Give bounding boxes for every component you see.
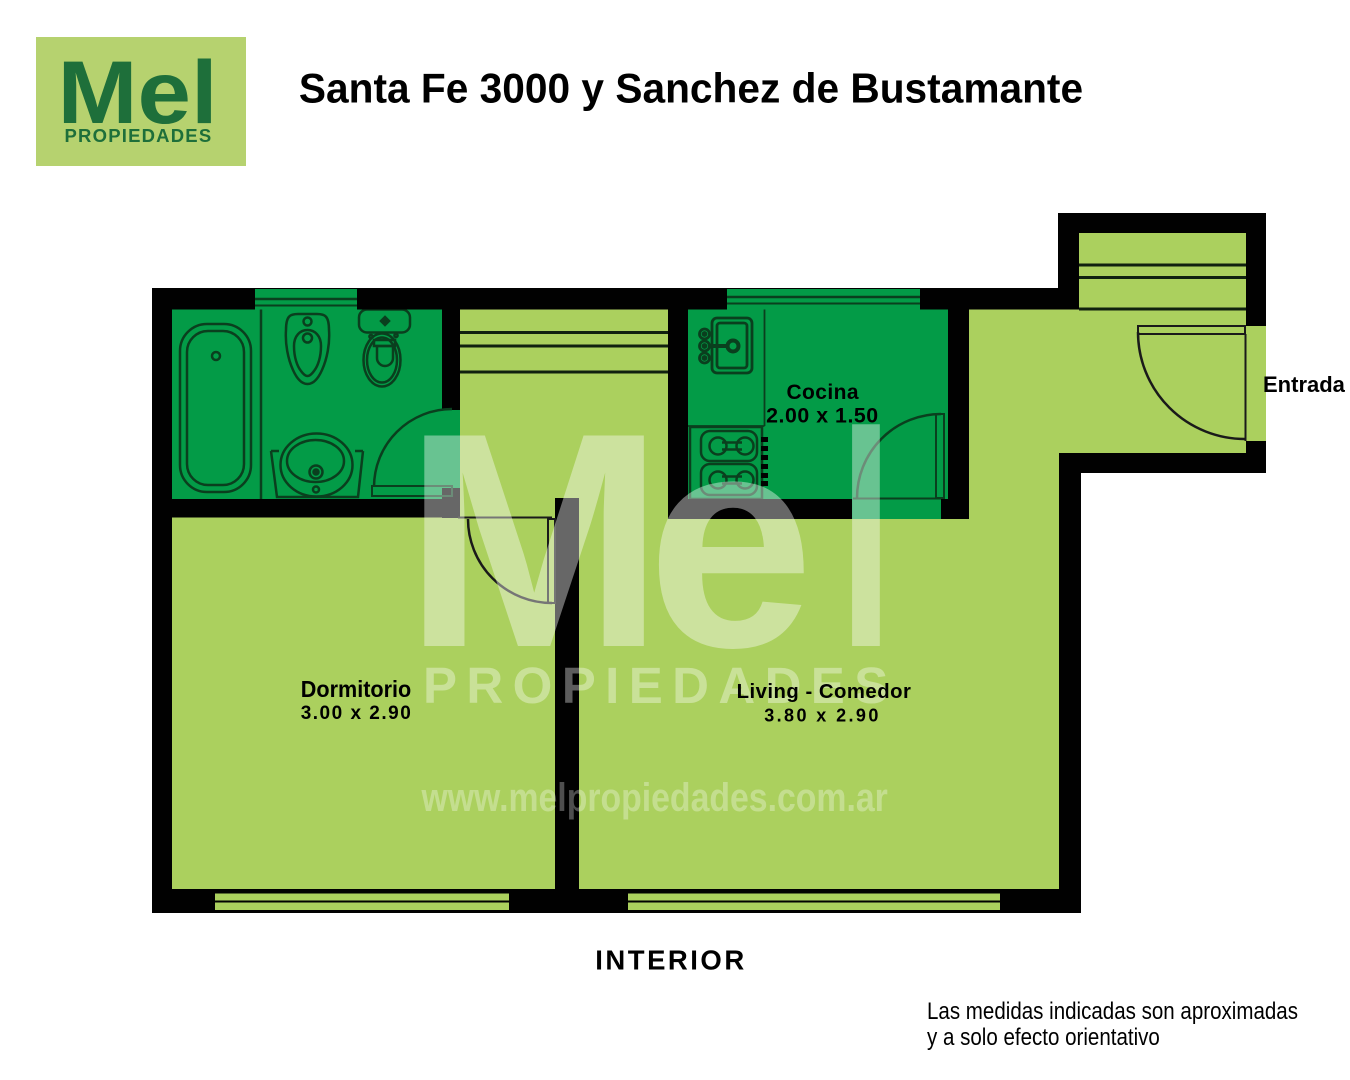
svg-text:y a solo efecto orientativo: y a solo efecto orientativo [927,1024,1160,1051]
svg-text:3.00 x 2.90: 3.00 x 2.90 [301,703,413,724]
svg-text:PROPIEDADES: PROPIEDADES [65,125,213,146]
svg-text:Entrada: Entrada [1263,372,1346,397]
svg-text:Cocina: Cocina [786,381,858,404]
svg-text:www.melpropiedades.com.ar: www.melpropiedades.com.ar [421,774,888,819]
svg-text:Living - Comedor: Living - Comedor [737,681,912,703]
svg-text:INTERIOR: INTERIOR [595,945,746,976]
svg-text:Dormitorio: Dormitorio [301,676,411,702]
svg-text:Santa Fe 3000 y Sanchez de Bus: Santa Fe 3000 y Sanchez de Bustamante [299,65,1083,111]
svg-text:2.00 x 1.50: 2.00 x 1.50 [766,404,879,428]
svg-text:Las medidas indicadas son apro: Las medidas indicadas son aproximadas [927,998,1298,1025]
svg-text:3.80 x 2.90: 3.80 x 2.90 [764,705,880,725]
